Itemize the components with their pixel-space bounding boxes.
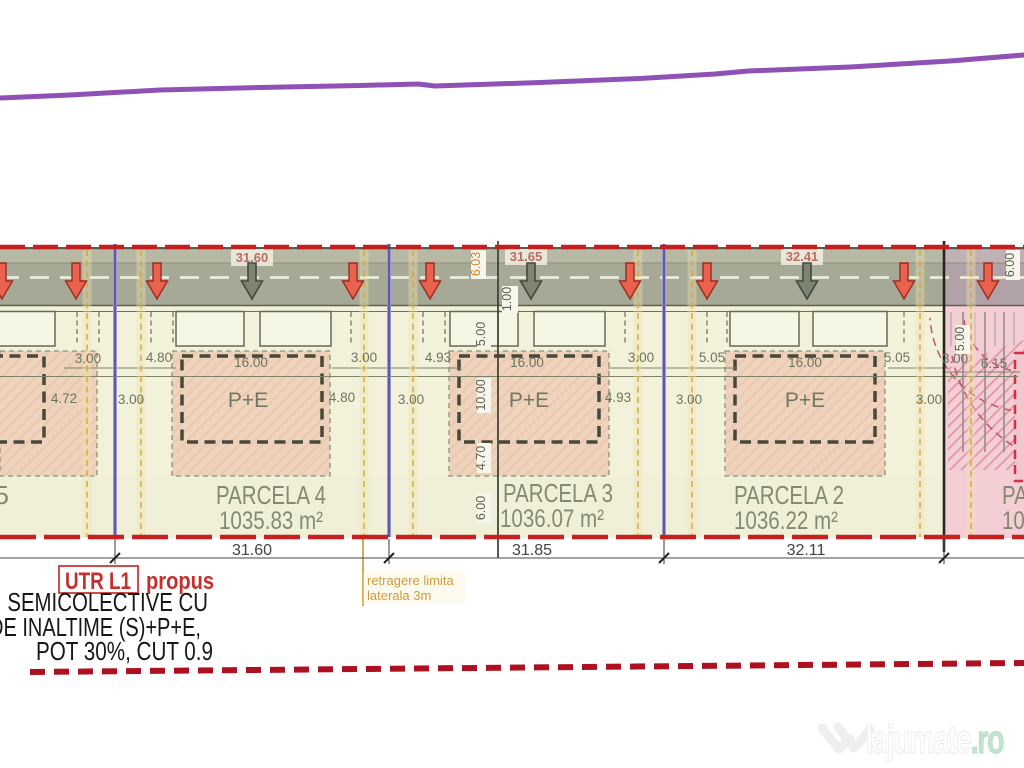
svg-text:31.60: 31.60 xyxy=(232,542,272,559)
svg-text:6.00: 6.00 xyxy=(474,496,488,520)
svg-text:3.00: 3.00 xyxy=(75,351,101,366)
svg-text:PARCELA 2: PARCELA 2 xyxy=(734,480,844,510)
svg-text:PARCELA 5: PARCELA 5 xyxy=(0,480,9,510)
svg-text:32.11: 32.11 xyxy=(787,542,826,559)
svg-text:16.00: 16.00 xyxy=(234,355,268,370)
svg-text:3.00: 3.00 xyxy=(351,350,377,365)
svg-text:3.00: 3.00 xyxy=(398,392,424,407)
svg-text:PARCELA 1: PARCELA 1 xyxy=(1002,480,1024,510)
svg-text:4.80: 4.80 xyxy=(329,390,355,405)
svg-text:5.00: 5.00 xyxy=(953,327,967,351)
svg-text:31.65: 31.65 xyxy=(510,249,543,264)
svg-text:PARCELA 3: PARCELA 3 xyxy=(503,478,613,508)
svg-text:4.80: 4.80 xyxy=(146,350,172,365)
svg-text:16.00: 16.00 xyxy=(788,355,822,370)
svg-text:4.93: 4.93 xyxy=(605,390,631,405)
svg-text:3.00: 3.00 xyxy=(118,392,144,407)
svg-text:1036.07 m²: 1036.07 m² xyxy=(500,505,604,533)
svg-text:5.05: 5.05 xyxy=(699,350,725,365)
svg-text:6.00: 6.00 xyxy=(1003,253,1017,277)
svg-text:5.00: 5.00 xyxy=(474,322,488,346)
svg-text:16.00: 16.00 xyxy=(510,355,544,370)
svg-text:P+E: P+E xyxy=(785,389,825,412)
svg-text:P+E: P+E xyxy=(509,389,549,412)
svg-text:1035.83 m²: 1035.83 m² xyxy=(219,507,323,535)
svg-text:retragere limita: retragere limita xyxy=(367,573,454,588)
svg-text:3.00: 3.00 xyxy=(676,392,702,407)
svg-text:1036.40 m²: 1036.40 m² xyxy=(1002,507,1024,535)
svg-text:P+E: P+E xyxy=(228,389,268,412)
svg-text:laterala 3m: laterala 3m xyxy=(367,588,431,603)
svg-text:3.00: 3.00 xyxy=(916,392,942,407)
svg-text:5.05: 5.05 xyxy=(884,350,910,365)
svg-text:4.93: 4.93 xyxy=(425,350,451,365)
svg-text:POT 30%, CUT 0.9: POT 30%, CUT 0.9 xyxy=(36,636,213,666)
svg-text:1.00: 1.00 xyxy=(500,287,514,311)
svg-text:31.85: 31.85 xyxy=(512,542,552,559)
svg-text:1036.22 m²: 1036.22 m² xyxy=(734,507,838,535)
svg-text:6.03: 6.03 xyxy=(469,252,483,276)
svg-text:10.00: 10.00 xyxy=(474,379,488,410)
svg-text:32.41: 32.41 xyxy=(786,249,819,264)
svg-text:lajumate.ro: lajumate.ro xyxy=(865,717,1003,762)
svg-text:4.72: 4.72 xyxy=(51,391,77,406)
svg-text:3.00: 3.00 xyxy=(628,350,654,365)
svg-text:4.70: 4.70 xyxy=(474,446,488,470)
svg-text:PARCELA 4: PARCELA 4 xyxy=(216,480,326,510)
svg-text:6.15: 6.15 xyxy=(981,356,1007,371)
